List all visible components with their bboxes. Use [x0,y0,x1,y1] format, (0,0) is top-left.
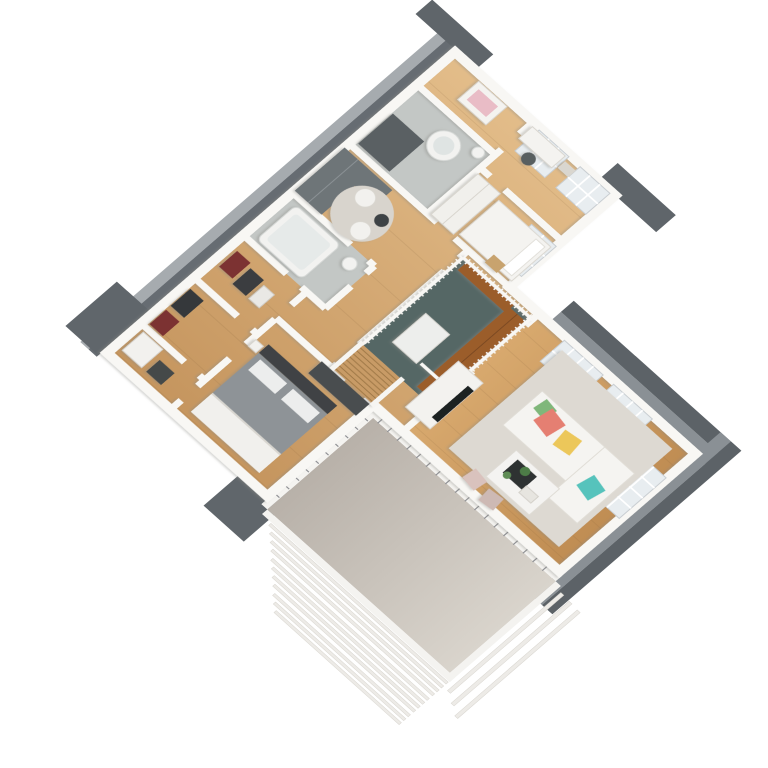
plan-projection [4,0,768,747]
wall-lobby-b [199,375,204,380]
wall-closet-split-b [252,330,257,335]
floorplan-3d-render: Isometric 3D floor plan render of an upp… [0,0,768,768]
floorplan-canvas [0,0,768,768]
